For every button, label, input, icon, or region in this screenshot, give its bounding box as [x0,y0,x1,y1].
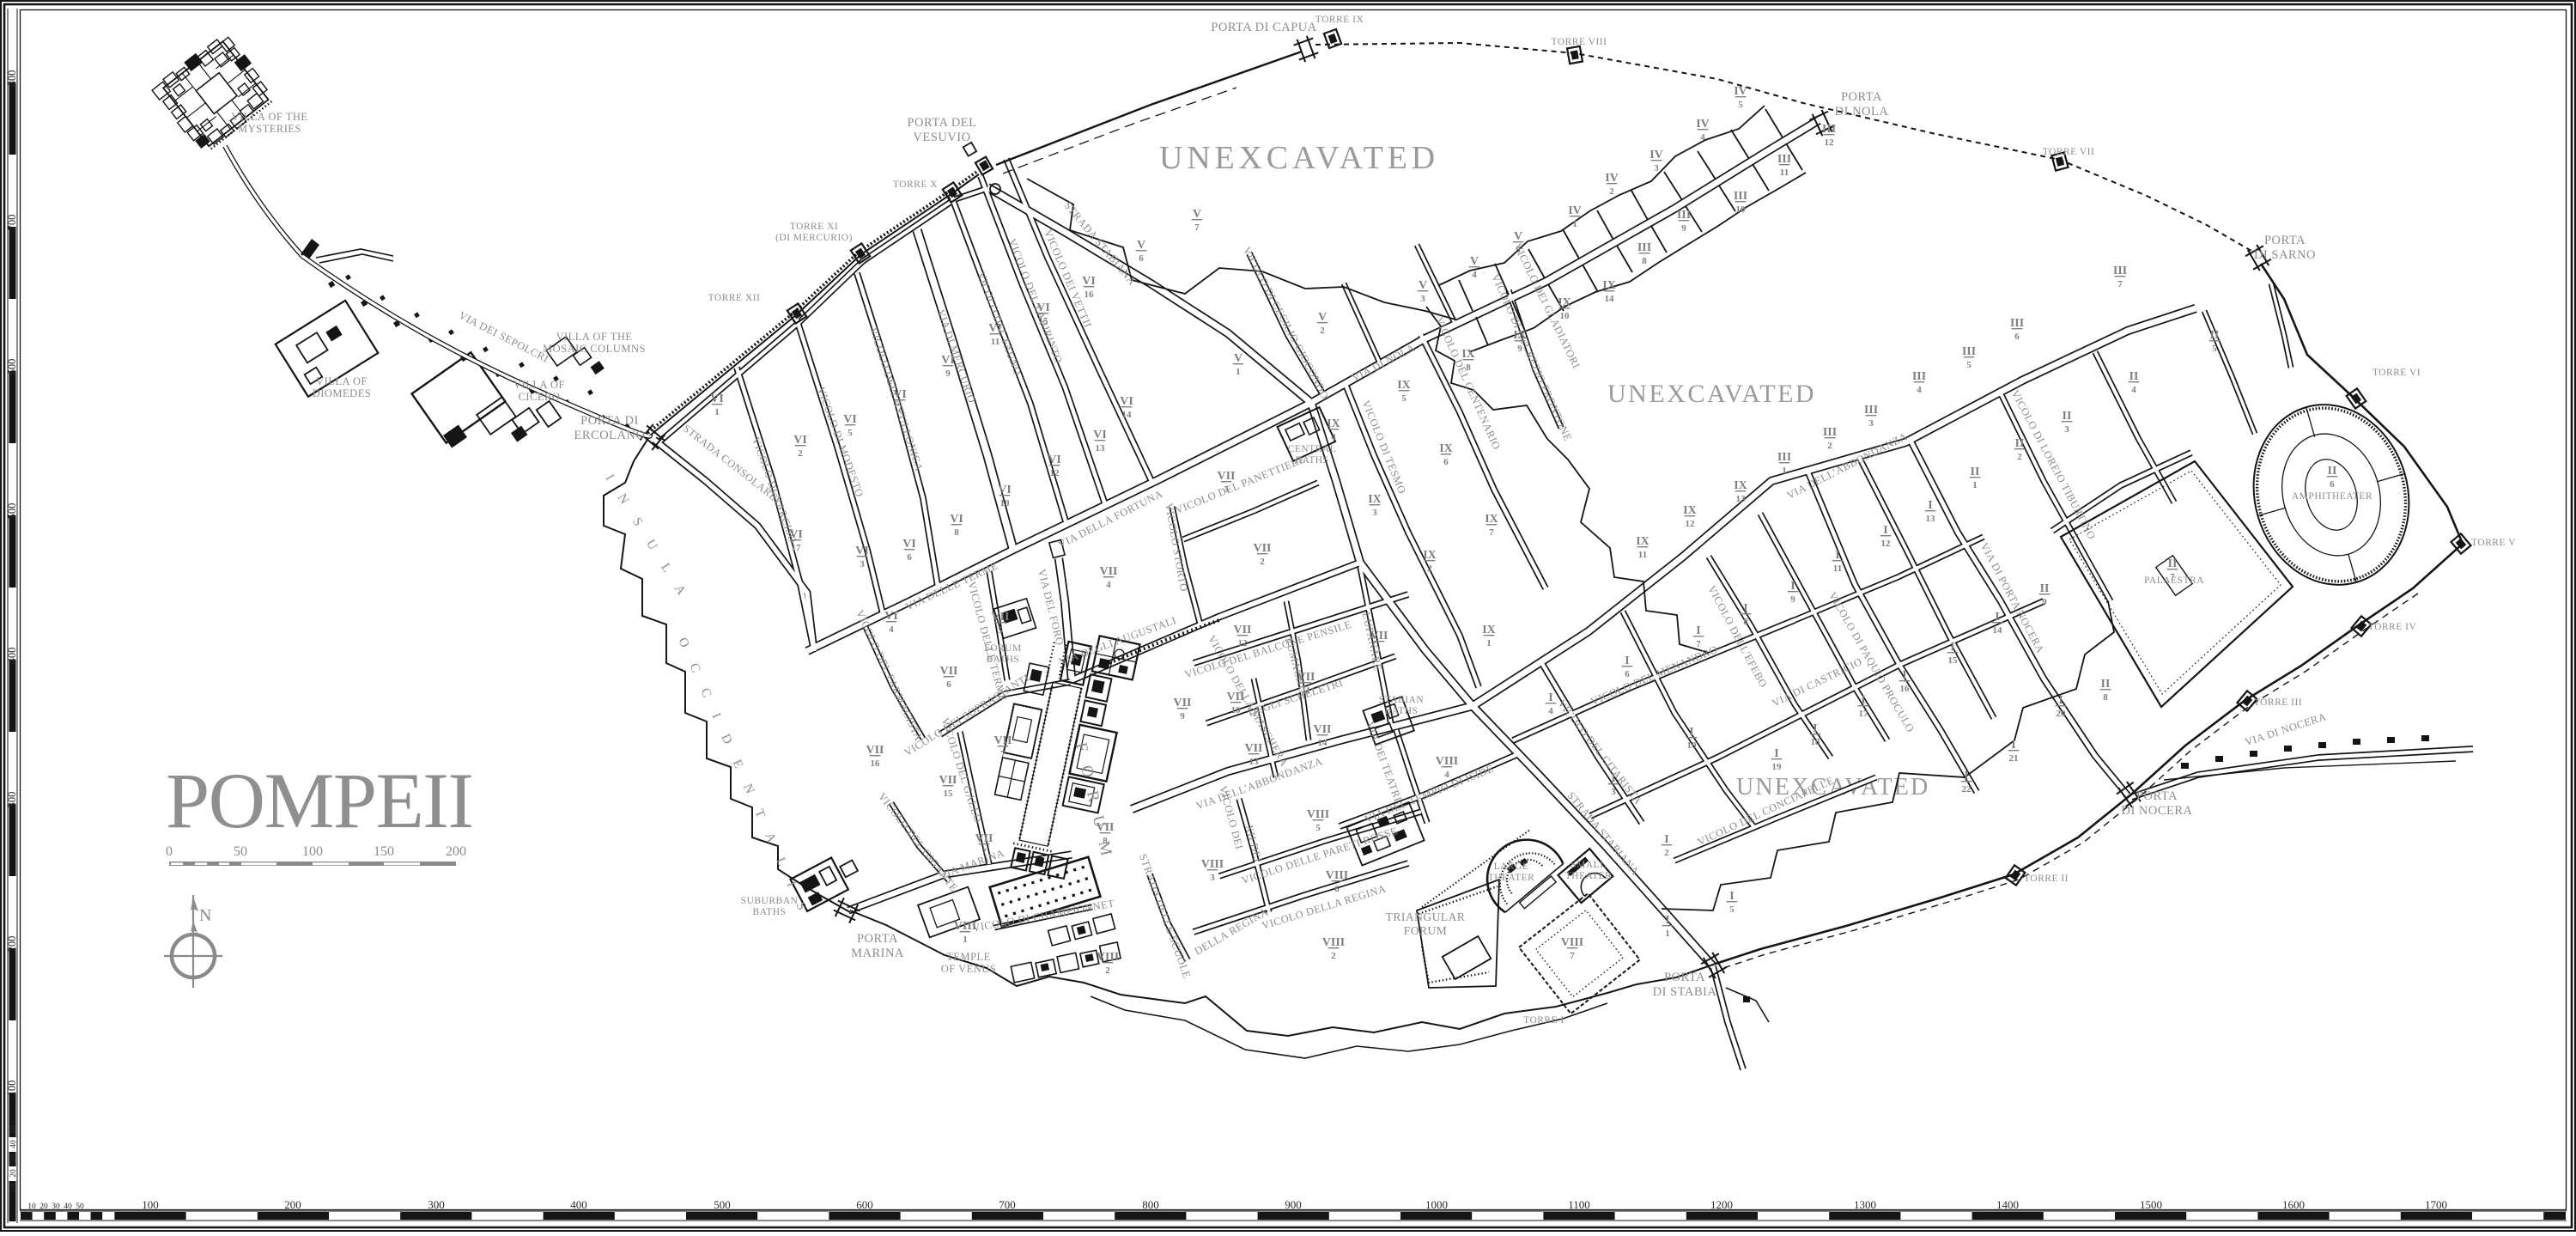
svg-text:40: 40 [9,1140,18,1148]
svg-text:2: 2 [1260,557,1265,567]
svg-text:PORTA DI: PORTA DI [580,414,639,428]
svg-text:II: II [2015,437,2025,450]
svg-text:8: 8 [2103,692,2108,703]
svg-text:3: 3 [1611,787,1616,797]
svg-text:6: 6 [1443,457,1449,467]
svg-text:I: I [1928,499,1932,512]
svg-text:400: 400 [570,1198,587,1211]
svg-text:20: 20 [2057,709,2067,719]
svg-text:PORTA DEL: PORTA DEL [907,116,976,130]
svg-text:VESUVIO: VESUVIO [913,131,970,144]
svg-text:600: 600 [856,1198,873,1211]
svg-text:5: 5 [1401,393,1406,404]
svg-text:II: II [2168,557,2178,570]
svg-text:4: 4 [1472,270,1477,280]
svg-text:VI: VI [1120,395,1133,408]
svg-text:III: III [1823,426,1837,439]
svg-text:7: 7 [2117,279,2123,289]
svg-text:5: 5 [848,428,853,438]
svg-text:13: 13 [1926,514,1936,524]
svg-text:9: 9 [945,368,951,379]
svg-text:III: III [1637,241,1651,254]
svg-text:30: 30 [52,1203,60,1211]
svg-text:2: 2 [1827,441,1832,451]
svg-text:17: 17 [792,543,802,553]
svg-text:I: I [1664,833,1668,846]
svg-text:5: 5 [1966,360,1971,370]
svg-text:DI NOCERA: DI NOCERA [2121,804,2192,818]
svg-text:17: 17 [1859,709,1869,719]
svg-text:12: 12 [1881,539,1892,549]
svg-text:III: III [1822,123,1836,136]
svg-text:100: 100 [6,1081,18,1097]
svg-text:VII: VII [1244,742,1262,755]
svg-text:VII: VII [993,734,1012,747]
svg-text:3: 3 [1224,484,1229,495]
svg-text:I: I [1689,726,1693,739]
svg-text:22: 22 [1962,784,1972,795]
svg-text:2: 2 [1105,965,1110,976]
svg-text:4: 4 [1917,385,1922,395]
svg-text:VII: VII [1297,671,1315,684]
svg-text:VILLA OF THE: VILLA OF THE [231,111,307,123]
svg-text:14: 14 [1605,294,1615,304]
svg-text:III: III [1912,370,1926,383]
svg-text:12: 12 [1050,468,1060,478]
svg-text:V: V [1234,352,1242,365]
svg-text:15: 15 [944,788,954,799]
svg-text:VII: VII [1096,821,1114,834]
svg-text:AMPHITHEATER: AMPHITHEATER [2292,491,2372,502]
svg-text:SUBURBAN: SUBURBAN [741,896,799,906]
svg-text:IX: IX [1461,348,1475,361]
svg-text:II: II [1971,466,1980,478]
svg-text:TORRE XII: TORRE XII [708,293,761,303]
svg-text:IX: IX [1683,504,1697,517]
svg-text:V: V [1137,239,1145,252]
svg-text:30: 30 [9,1154,18,1163]
svg-text:TORRE VII: TORRE VII [2043,147,2095,157]
svg-text:I: I [1729,890,1734,903]
svg-text:16: 16 [1900,684,1911,694]
svg-text:VI: VI [950,513,963,526]
svg-text:VIII: VIII [954,920,976,933]
svg-text:1700: 1700 [2425,1198,2447,1211]
svg-text:IX: IX [1734,479,1747,492]
svg-text:3: 3 [1210,873,1215,883]
svg-text:III: III [1677,209,1691,222]
svg-text:I: I [1950,641,1954,654]
svg-text:50: 50 [76,1203,84,1211]
svg-text:4: 4 [2131,385,2136,395]
svg-text:800: 800 [6,70,18,87]
svg-text:CICERO: CICERO [519,391,561,403]
svg-text:BATHS: BATHS [753,907,787,917]
svg-text:VILLA OF THE: VILLA OF THE [556,331,632,343]
svg-text:TRIANGULAR: TRIANGULAR [1386,910,1466,923]
svg-text:PORTA: PORTA [2136,789,2178,803]
svg-text:I: I [1696,624,1700,637]
svg-text:POMPEII: POMPEII [166,757,473,844]
svg-text:3: 3 [1372,508,1377,518]
svg-text:500: 500 [714,1198,731,1211]
svg-text:VI: VI [1093,429,1107,441]
svg-text:200: 200 [446,844,466,859]
svg-text:I: I [1743,602,1747,615]
svg-text:9: 9 [1681,223,1686,234]
svg-text:VI: VI [1036,301,1050,314]
svg-text:VII: VII [939,774,957,787]
svg-text:III: III [1777,451,1791,464]
svg-text:VII: VII [866,744,884,757]
svg-text:DI SARNO: DI SARNO [2254,248,2316,262]
svg-text:III: III [1734,190,1747,203]
svg-text:7: 7 [981,847,987,857]
svg-text:16: 16 [1084,289,1095,300]
svg-text:IV: IV [1605,172,1619,185]
svg-text:5: 5 [2212,344,2217,354]
svg-text:9: 9 [1180,711,1185,722]
svg-text:III: III [1962,345,1976,358]
svg-text:III: III [2113,265,2127,277]
svg-text:12: 12 [1238,638,1249,648]
svg-text:VI: VI [843,413,857,426]
svg-text:1000: 1000 [1425,1198,1448,1211]
svg-text:TORRE I: TORRE I [1523,1015,1564,1026]
svg-text:21: 21 [2009,753,2019,764]
svg-text:BATHS: BATHS [1296,455,1329,466]
svg-text:200: 200 [284,1198,301,1211]
svg-text:VII: VII [991,611,1009,624]
svg-text:IX: IX [1423,549,1437,562]
svg-text:TORRE III: TORRE III [2254,697,2302,708]
svg-text:100: 100 [142,1198,159,1211]
svg-text:10: 10 [27,1203,36,1211]
svg-text:700: 700 [6,215,18,231]
svg-text:IX: IX [1558,296,1571,309]
svg-text:(DI MERCURIO): (DI MERCURIO) [775,233,853,243]
svg-text:1: 1 [1782,466,1787,476]
svg-text:PORTA: PORTA [1841,90,1882,104]
svg-text:11: 11 [1833,563,1842,574]
svg-text:VII: VII [1313,723,1331,736]
svg-text:VILLA OF: VILLA OF [316,375,368,387]
svg-text:UNEXCAVATED: UNEXCAVATED [1159,140,1439,176]
svg-text:V: V [1318,311,1327,324]
svg-text:4: 4 [889,624,894,635]
svg-text:8: 8 [1642,256,1647,266]
svg-text:II: II [2328,465,2337,478]
svg-text:3: 3 [2064,424,2069,435]
svg-text:IX: IX [1485,513,1498,526]
svg-text:VI: VI [855,545,869,557]
svg-text:OF VENUS: OF VENUS [941,963,997,975]
svg-text:V: V [1470,255,1479,268]
svg-text:DI NOLA: DI NOLA [1835,105,1889,119]
svg-text:IX: IX [1602,279,1616,292]
svg-text:VIII: VIII [1201,858,1224,871]
svg-text:IV: IV [1696,118,1710,131]
svg-text:I: I [1665,914,1669,927]
svg-text:1: 1 [1572,219,1577,229]
svg-text:I: I [1774,747,1778,760]
svg-text:IX: IX [1439,442,1453,455]
svg-text:14: 14 [1318,738,1328,748]
svg-text:I: I [1995,611,1999,624]
svg-text:VIII: VIII [1561,936,1583,949]
svg-text:I: I [2011,739,2015,752]
svg-text:I: I [1813,722,1817,735]
svg-text:11: 11 [1302,685,1310,696]
svg-text:TEMPLE: TEMPLE [946,951,991,963]
svg-text:I: I [1861,694,1865,707]
svg-text:I: I [1548,691,1552,704]
svg-text:1: 1 [963,935,968,945]
svg-text:2: 2 [1320,326,1325,336]
svg-text:16: 16 [871,758,881,769]
svg-text:5: 5 [1729,904,1735,915]
svg-text:VIII: VIII [1307,808,1329,821]
svg-text:100: 100 [302,844,323,859]
svg-text:11: 11 [991,337,999,347]
svg-text:II: II [2210,329,2220,342]
svg-text:13: 13 [1736,494,1747,504]
svg-text:III: III [1864,404,1878,417]
svg-text:VII: VII [1226,691,1244,703]
svg-text:7: 7 [1194,222,1200,233]
svg-text:VII: VII [1253,542,1271,555]
svg-text:1200: 1200 [1710,1198,1733,1211]
svg-text:IV: IV [1568,204,1582,217]
svg-text:TORRE II: TORRE II [2024,874,2069,884]
svg-text:10: 10 [1736,204,1747,215]
svg-text:VI: VI [789,528,803,541]
svg-text:19: 19 [1772,762,1783,772]
svg-text:PORTA DI CAPUA: PORTA DI CAPUA [1211,21,1316,34]
svg-text:8: 8 [1743,617,1748,627]
svg-text:IV: IV [1649,149,1663,161]
svg-text:MYSTERIES: MYSTERIES [238,123,301,135]
svg-text:700: 700 [999,1198,1016,1211]
svg-text:II: II [2129,370,2139,383]
svg-text:3: 3 [1420,294,1425,304]
svg-text:4: 4 [1700,132,1705,143]
svg-text:VIII: VIII [1322,936,1345,949]
svg-text:I: I [1883,524,1887,537]
svg-text:10: 10 [1560,311,1571,321]
svg-text:3: 3 [1654,163,1659,174]
svg-text:10: 10 [1231,705,1242,715]
svg-text:I: I [1790,580,1795,593]
svg-text:12: 12 [1686,519,1696,529]
svg-text:5: 5 [1516,245,1521,255]
svg-text:PORTA: PORTA [2264,234,2306,247]
svg-text:FORUM: FORUM [1404,924,1448,937]
svg-text:ERCOLANO: ERCOLANO [574,429,646,442]
svg-text:VI: VI [1082,275,1096,288]
svg-text:6: 6 [1625,669,1630,679]
svg-text:2: 2 [2017,452,2022,462]
svg-text:III: III [2010,317,2024,330]
svg-text:VIII: VIII [1326,869,1348,882]
svg-text:I: I [1964,770,1968,782]
svg-text:7: 7 [2170,572,2175,582]
svg-text:6: 6 [946,679,951,690]
svg-text:VIII: VIII [1097,951,1119,964]
svg-text:SMALL: SMALL [1571,860,1606,870]
svg-text:IX: IX [1636,535,1649,548]
svg-text:800: 800 [1142,1198,1159,1211]
svg-text:I: I [1611,772,1615,785]
svg-text:1: 1 [1972,480,1978,490]
svg-text:VI: VI [884,610,898,623]
svg-text:VII: VII [1217,470,1235,483]
svg-text:40: 40 [64,1203,72,1211]
svg-text:6: 6 [907,552,912,563]
svg-text:8: 8 [954,527,959,538]
svg-text:4: 4 [1444,770,1449,780]
svg-text:TORRE XI: TORRE XI [790,222,839,232]
svg-text:IX: IX [1327,417,1340,430]
svg-text:THEATER: THEATER [1488,873,1535,883]
svg-text:IX: IX [1397,379,1411,392]
svg-text:VI: VI [893,388,907,401]
svg-text:600: 600 [6,359,18,375]
svg-text:VII: VII [1173,697,1191,709]
svg-text:TORRE VI: TORRE VI [2372,368,2421,378]
svg-text:7: 7 [897,403,902,413]
svg-text:VII: VII [1370,630,1388,642]
svg-text:2: 2 [798,448,803,459]
svg-text:3: 3 [1868,418,1874,429]
svg-text:IX: IX [1482,624,1496,636]
svg-text:6: 6 [1334,884,1340,894]
svg-text:1300: 1300 [1854,1198,1876,1211]
svg-text:11: 11 [1638,550,1647,560]
svg-text:15: 15 [1039,316,1049,326]
svg-text:10: 10 [9,1184,18,1192]
svg-text:VI: VI [988,322,1002,335]
svg-text:6: 6 [2014,332,2020,342]
svg-text:7: 7 [1000,749,1005,759]
svg-text:10: 10 [1000,498,1011,508]
svg-text:500: 500 [6,503,18,520]
svg-text:I: I [1625,655,1629,667]
svg-text:CENTRAL: CENTRAL [1288,444,1337,454]
svg-text:II: II [2040,582,2050,595]
svg-text:VII: VII [939,665,957,678]
svg-text:9: 9 [2042,597,2047,607]
svg-text:8: 8 [1466,362,1471,373]
svg-text:13: 13 [1096,443,1106,454]
svg-text:VII: VII [1233,624,1251,636]
svg-text:8: 8 [1103,836,1108,846]
svg-text:VI: VI [710,393,724,405]
svg-text:LARGE: LARGE [1494,862,1529,872]
svg-text:4: 4 [1106,580,1111,590]
svg-text:BATHS: BATHS [987,655,1020,665]
svg-text:1: 1 [714,407,720,417]
svg-text:IV: IV [1734,85,1747,98]
svg-text:PORTA: PORTA [857,932,898,946]
svg-text:3: 3 [860,559,865,569]
svg-text:TORRE IX: TORRE IX [1315,15,1364,25]
svg-text:300: 300 [428,1198,445,1211]
svg-text:11: 11 [1780,167,1789,178]
svg-text:50: 50 [234,844,247,859]
svg-text:TORRE VIII: TORRE VIII [1552,37,1607,47]
svg-text:TORRE X: TORRE X [893,180,938,190]
svg-text:1: 1 [1486,638,1492,648]
svg-text:150: 150 [374,844,394,859]
svg-text:4: 4 [1548,706,1553,716]
svg-text:MARINA: MARINA [851,947,904,960]
svg-text:VI: VI [998,484,1012,496]
svg-text:1400: 1400 [1996,1198,2019,1211]
svg-text:6: 6 [1139,253,1144,264]
svg-text:1: 1 [1665,929,1670,939]
svg-text:STABIAN: STABIAN [1379,695,1425,705]
svg-text:7: 7 [1696,639,1701,649]
svg-text:6: 6 [2330,479,2335,490]
svg-text:FORUM: FORUM [984,643,1021,654]
svg-text:VI: VI [1048,454,1061,466]
svg-text:5: 5 [1315,823,1321,833]
svg-text:VIII: VIII [1436,755,1458,768]
svg-text:12: 12 [1825,137,1835,148]
svg-text:V: V [1514,230,1522,243]
svg-text:2: 2 [1331,951,1336,961]
svg-text:0: 0 [166,844,173,859]
svg-text:VI: VI [902,538,916,551]
svg-text:20: 20 [9,1169,18,1178]
svg-text:7: 7 [1570,951,1575,961]
svg-text:2: 2 [1609,186,1614,197]
svg-text:15: 15 [1948,655,1959,666]
svg-text:I: I [1902,669,1906,682]
svg-text:VI: VI [793,434,807,447]
svg-text:I: I [1835,549,1839,562]
svg-text:VII: VII [975,832,993,845]
svg-text:V: V [1419,279,1427,292]
svg-text:DIOMEDES: DIOMEDES [313,387,372,399]
svg-text:1: 1 [1376,644,1382,655]
svg-text:1: 1 [1236,367,1241,377]
svg-text:1100: 1100 [1568,1198,1590,1211]
svg-text:TORRE V: TORRE V [2471,538,2516,548]
svg-text:13: 13 [1249,757,1260,767]
svg-text:III: III [1777,153,1791,166]
svg-text:2: 2 [1427,563,1432,574]
svg-text:II: II [2101,678,2111,691]
svg-text:14: 14 [1122,410,1133,420]
svg-text:VI: VI [941,354,955,367]
svg-text:IX: IX [1513,329,1527,342]
svg-text:9: 9 [1517,344,1522,354]
svg-text:300: 300 [6,792,18,808]
svg-text:10: 10 [1687,740,1698,751]
svg-text:PORTA: PORTA [1664,971,1705,984]
svg-text:5: 5 [1738,100,1743,110]
svg-text:2: 2 [1664,848,1669,858]
svg-text:BATHS: BATHS [1385,706,1419,716]
svg-text:7: 7 [1489,527,1494,538]
svg-text:900: 900 [1285,1198,1302,1211]
svg-text:5: 5 [998,625,1003,636]
svg-text:TORRE IV: TORRE IV [2368,622,2417,632]
svg-text:DI STABIA: DI STABIA [1653,985,1717,999]
svg-text:400: 400 [6,648,18,664]
